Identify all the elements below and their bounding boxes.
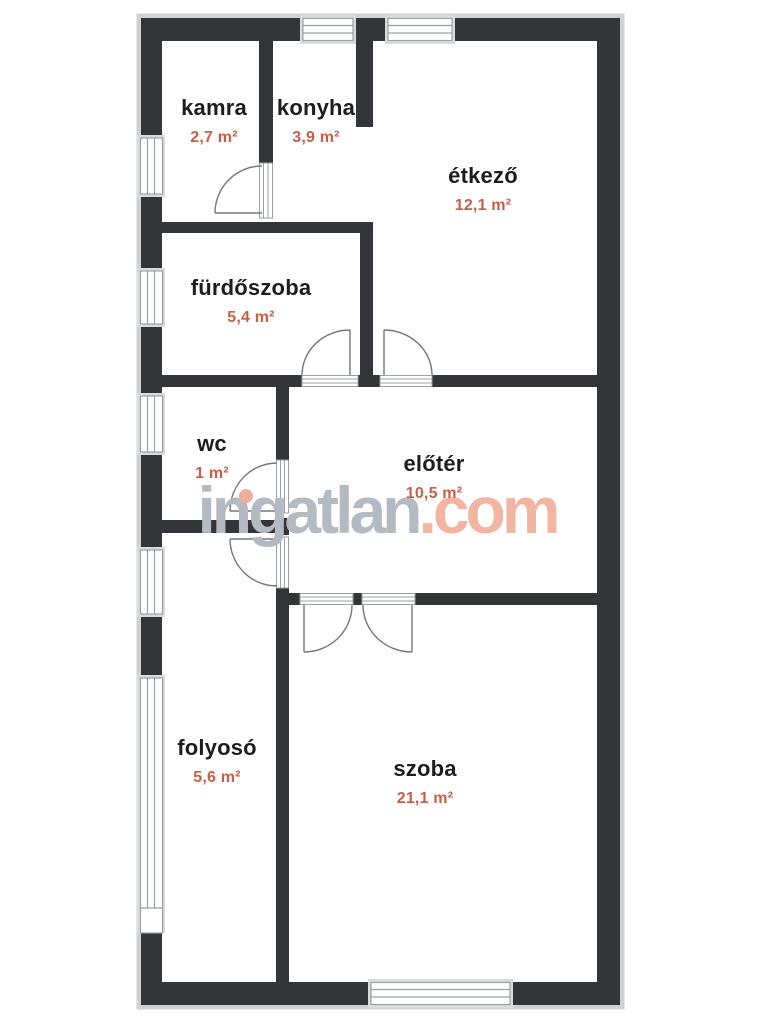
- room-area: 1 m²: [195, 465, 229, 483]
- room-name: wc: [195, 431, 229, 457]
- wall-kamra-konyha: [259, 41, 273, 163]
- watermark-main: ingatlan: [197, 473, 418, 547]
- room-label-kamra: kamra 2,7 m²: [181, 95, 247, 147]
- watermark: ingatlan.com: [197, 477, 556, 543]
- room-label-folyoso: folyosó 5,6 m²: [177, 735, 257, 787]
- room-area: 5,4 m²: [191, 309, 312, 327]
- room-area: 21,1 m²: [393, 790, 456, 808]
- door-szoba-right: [363, 605, 412, 652]
- wall-eloter-szoba-left: [289, 593, 300, 605]
- room-label-etkezo: étkező 12,1 m²: [448, 163, 518, 215]
- wall-middle-center: [358, 375, 380, 387]
- wall-konyha-etkezo: [356, 41, 373, 127]
- window-furdoszoba: [137, 268, 165, 327]
- room-area: 10,5 m²: [403, 485, 464, 503]
- wall-kamra-furdoszoba: [162, 222, 373, 233]
- door-frame-furdoszoba: [302, 376, 358, 387]
- window-folyoso-upper: [137, 547, 165, 617]
- door-frame-szoba-right: [362, 594, 415, 605]
- room-label-szoba: szoba 21,1 m²: [393, 756, 456, 808]
- window-etkezo-top: [385, 15, 455, 44]
- room-name: konyha: [277, 95, 355, 121]
- window-folyoso-lower: [137, 675, 165, 933]
- window-konyha-top: [300, 15, 356, 44]
- door-swings: [215, 166, 432, 652]
- wall-wc-eloter: [276, 375, 289, 460]
- room-area: 12,1 m²: [448, 197, 518, 215]
- room-area: 5,6 m²: [177, 769, 257, 787]
- room-name: étkező: [448, 163, 518, 189]
- door-szoba-left: [304, 605, 352, 652]
- wall-eloter-szoba-right: [415, 593, 597, 605]
- door-frame-kamra: [260, 163, 273, 218]
- window-wc: [137, 393, 165, 455]
- room-name: fürdőszoba: [191, 275, 312, 301]
- room-label-wc: wc 1 m²: [195, 431, 229, 483]
- room-name: kamra: [181, 95, 247, 121]
- watermark-i-dot: [239, 489, 253, 503]
- door-kamra: [215, 166, 262, 213]
- window-kamra: [137, 135, 165, 197]
- wall-middle-right: [432, 375, 597, 387]
- wall-folyoso-szoba: [276, 588, 289, 982]
- floor-plan: ingatlan.com kamra 2,7 m² konyha 3,9 m² …: [0, 0, 760, 1024]
- room-label-furdoszoba: fürdőszoba 5,4 m²: [191, 275, 312, 327]
- room-name: folyosó: [177, 735, 257, 761]
- door-furdoszoba: [302, 330, 350, 375]
- door-etkezo: [384, 330, 432, 375]
- room-area: 2,7 m²: [181, 129, 247, 147]
- room-label-eloter: előtér 10,5 m²: [403, 451, 464, 503]
- room-name: előtér: [403, 451, 464, 477]
- wall-furdoszoba-etkezo: [360, 233, 373, 375]
- window-szoba-bottom: [368, 979, 513, 1008]
- door-frame-etkezo: [380, 376, 432, 387]
- room-area: 3,9 m²: [277, 129, 355, 147]
- room-label-konyha: konyha 3,9 m²: [277, 95, 355, 147]
- door-frame-szoba-left: [300, 594, 353, 605]
- room-name: szoba: [393, 756, 456, 782]
